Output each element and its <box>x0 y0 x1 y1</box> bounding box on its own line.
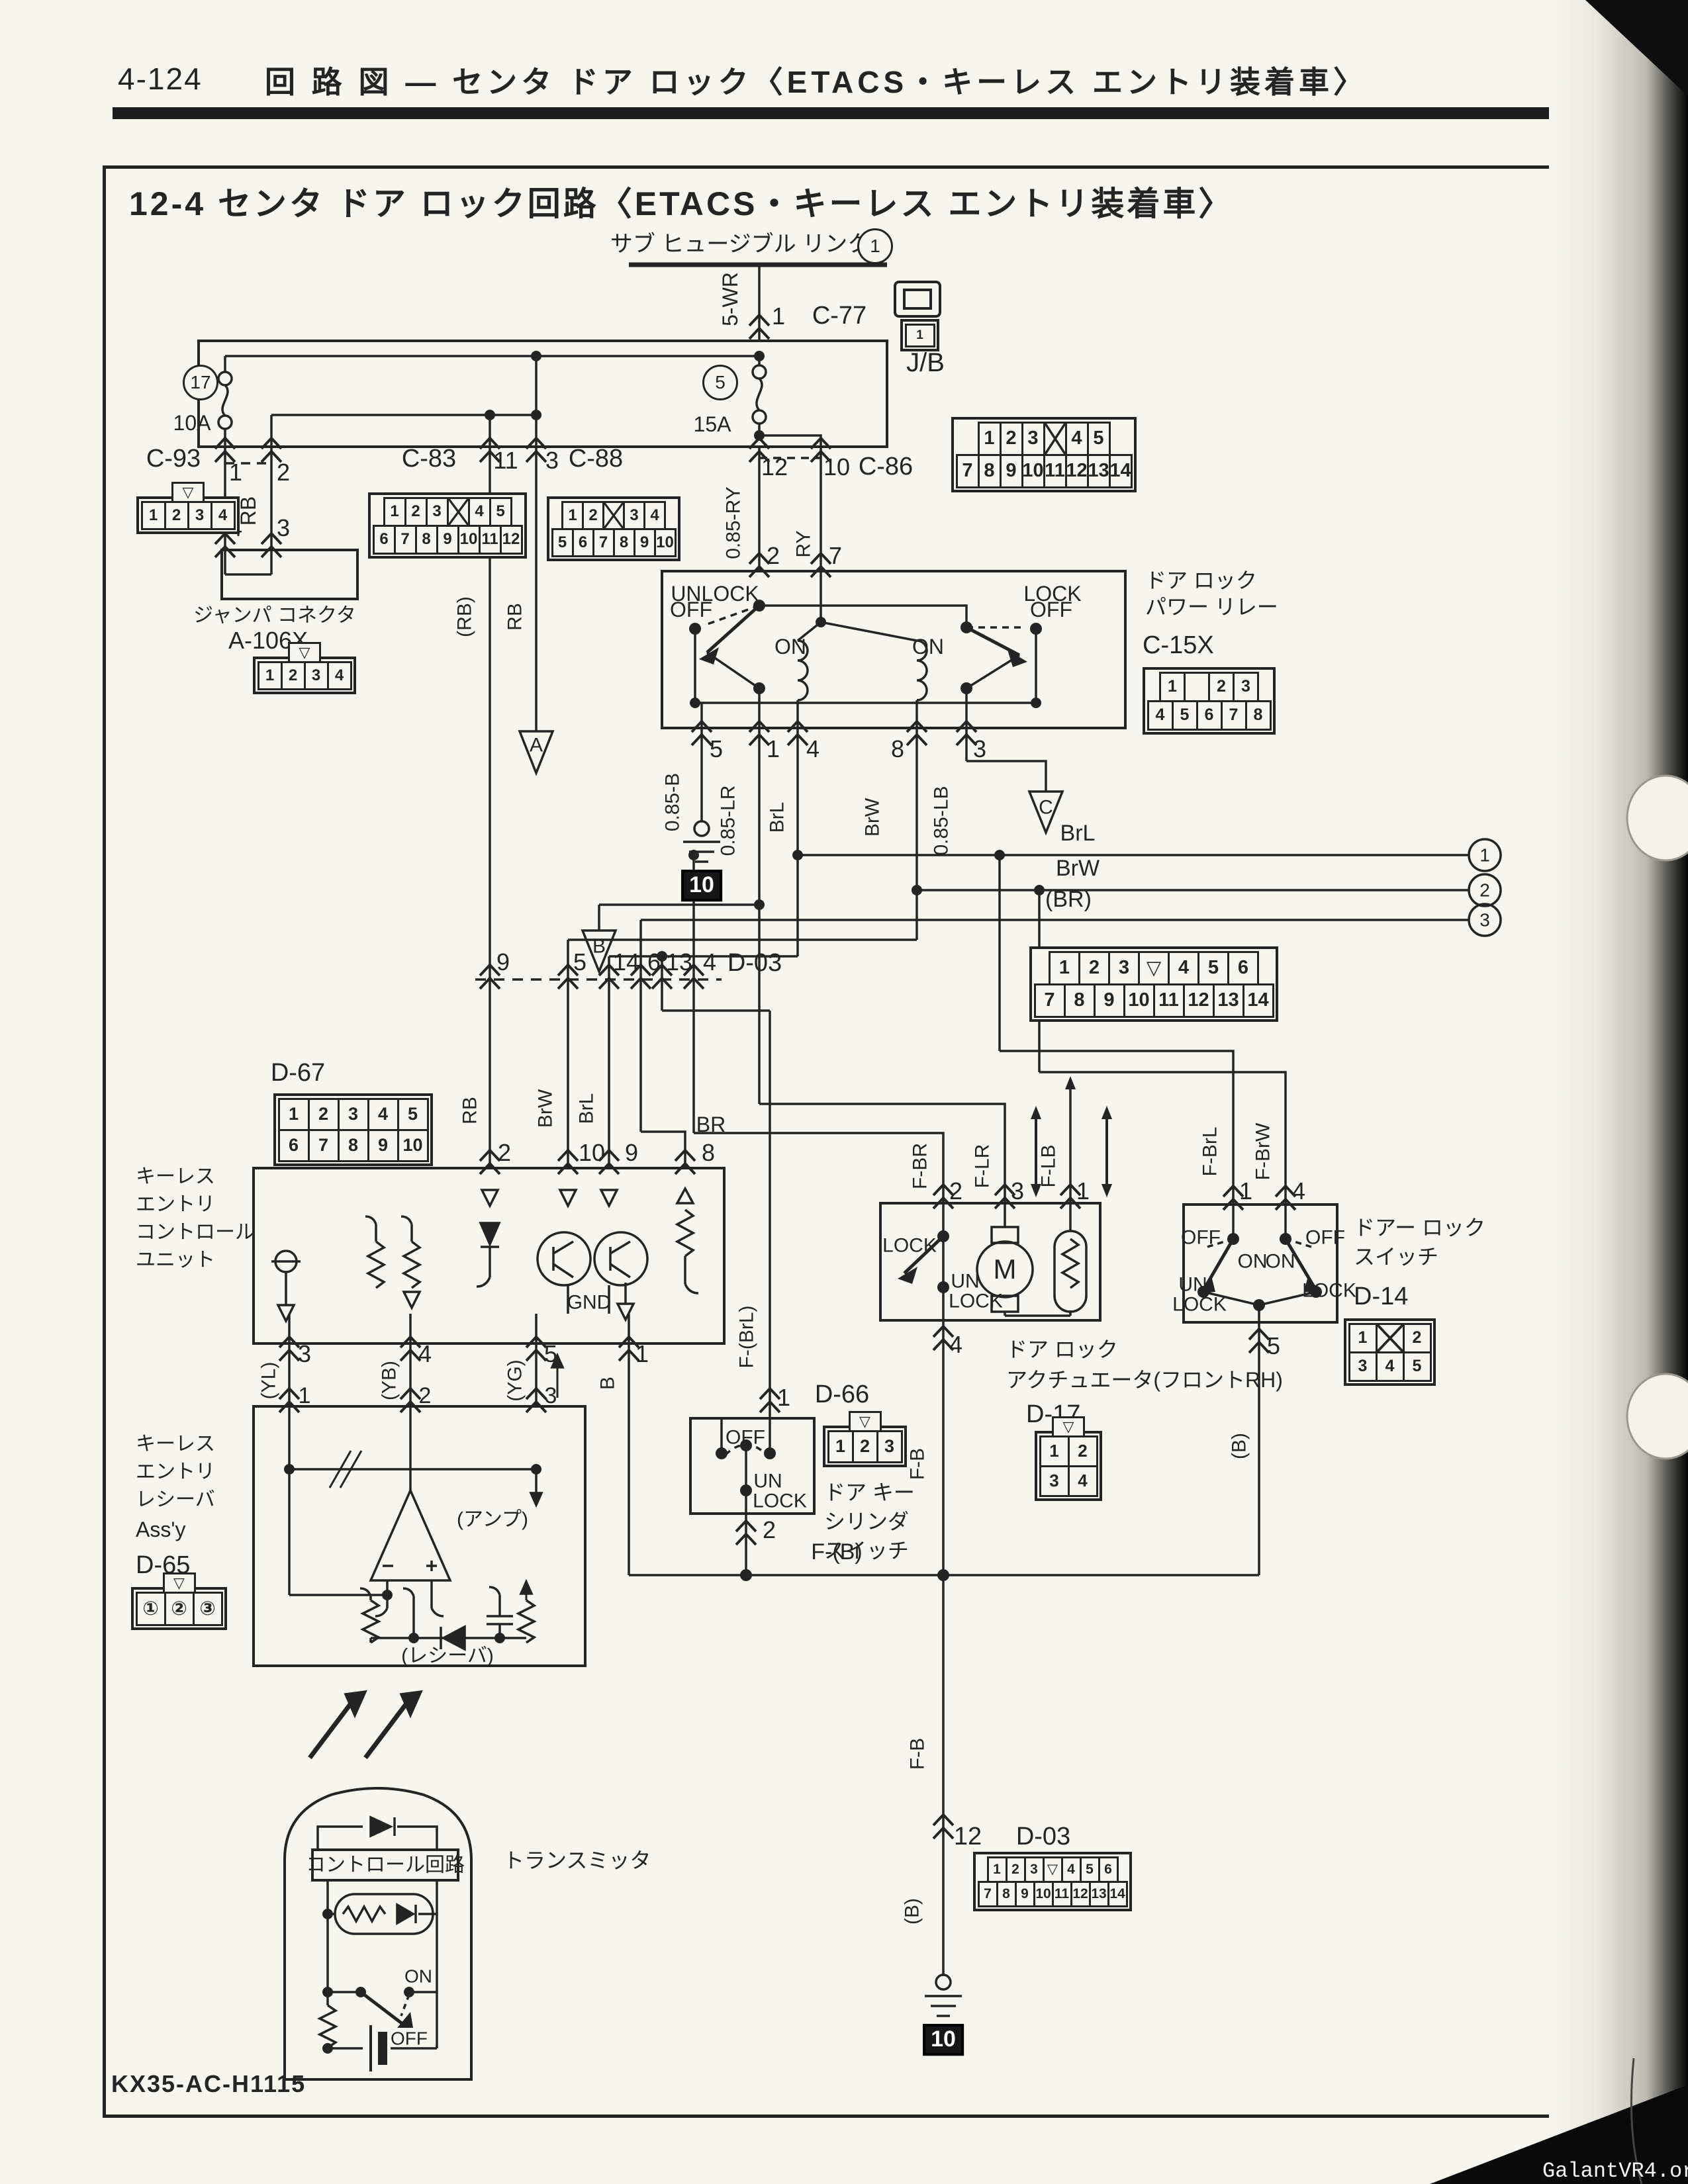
connector-pin-cell: 7 <box>394 525 417 555</box>
connector-C-88: 12345678910 <box>547 496 680 561</box>
connector-pin-cell: 3 <box>1233 672 1259 702</box>
diagram-label: B <box>597 1377 618 1390</box>
diagram-label: D-66 <box>815 1382 869 1408</box>
connector-pin-cell: 5 <box>1197 951 1229 985</box>
diagram-label: F-LB <box>1038 1144 1059 1187</box>
connector-pin-cell: 14 <box>1107 1881 1128 1907</box>
diagram-label: Ass'y <box>136 1519 185 1541</box>
connector-pin-cell: 11 <box>479 525 502 555</box>
diagram-label: 5 <box>702 365 738 400</box>
connector-pin-cell: 4 <box>1168 951 1199 985</box>
diagram-label: 1 <box>857 228 893 264</box>
diagram-label: LOCK <box>882 1235 937 1256</box>
diagram-label: ON <box>1266 1251 1295 1272</box>
connector-pin-cell <box>602 501 625 530</box>
diagram-label: (レシーバ) <box>401 1645 494 1666</box>
connector-pin-cell: 1 <box>1159 672 1186 702</box>
connector-pin-cell: 5 <box>1080 1856 1100 1883</box>
connector-pin-cell: 4 <box>643 501 666 530</box>
connector-pin-cell: 1 <box>278 1098 310 1131</box>
connector-D-17: ▽1234 <box>1035 1431 1102 1501</box>
diagram-label: パワー リレー <box>1145 596 1278 619</box>
diagram-label: 4 <box>806 737 820 762</box>
diagram-label: レシーバ <box>136 1489 215 1510</box>
diagram-label: 13 <box>666 950 692 975</box>
diagram-label: 0.85-B <box>662 773 683 831</box>
connector-pin-cell: 4 <box>1068 1465 1098 1497</box>
diagram-label: A <box>530 735 543 756</box>
diagram-label: 3 <box>1479 910 1490 929</box>
connector-pin-cell: 2 <box>281 661 306 690</box>
diagram-label: 9 <box>496 950 510 975</box>
diagram-label: サブ ヒュージブル リンク <box>610 233 870 257</box>
diagram-label: 2 <box>949 1179 962 1204</box>
connector-pin-cell: 8 <box>1245 700 1272 731</box>
connector-pin-cell: 4 <box>1061 1856 1082 1883</box>
connector-pin-cell: 10 <box>397 1129 429 1162</box>
connector-pin-cell: 1 <box>141 501 166 530</box>
connector-pin-cell: 4 <box>367 1098 399 1131</box>
diagram-label: 1 <box>229 460 242 485</box>
diagram-label: 0.85-RY <box>723 486 744 559</box>
diagram-label: F-B <box>907 1448 928 1480</box>
diagram-label: 0.85-LB <box>931 786 952 855</box>
diagram-label: D-67 <box>271 1060 325 1087</box>
diagram-label: 5 <box>573 950 586 975</box>
diagram-label: キーレス <box>136 1433 215 1455</box>
connector-pin-cell: 14 <box>1243 983 1274 1018</box>
connector-pin-cell: 5 <box>397 1098 429 1131</box>
connector-pin-cell: 2 <box>164 501 189 530</box>
diagram-label: 5 <box>1267 1334 1280 1359</box>
diagram-label: 10 <box>923 2024 964 2056</box>
diagram-label: F-BR <box>910 1143 931 1189</box>
connector-pin-cell: 12 <box>1183 983 1215 1018</box>
connector-pin-cell: 6 <box>1196 700 1223 731</box>
diagram-label: (BR) <box>1045 888 1092 912</box>
diagram-label: UN <box>753 1471 782 1492</box>
diagram-label: ON <box>912 636 944 659</box>
connector-pin-cell: 5 <box>1087 422 1111 456</box>
diagram-label: LOCK <box>1172 1294 1227 1315</box>
diagram-label: 5 <box>710 737 723 762</box>
manual-page: 4-124 回 路 図 ― センタ ドア ロック〈ETACS・キーレス エントリ… <box>0 0 1688 2184</box>
diagram-label: 1 <box>772 304 785 329</box>
connector-pin-cell: 9 <box>1094 983 1125 1018</box>
connector-C-86: 123457891011121314 <box>951 417 1137 492</box>
c77-icon <box>895 282 940 316</box>
connector-pin-cell: 4 <box>1376 1351 1405 1382</box>
diagram-label: 4 <box>1292 1179 1305 1204</box>
diagram-label: 4 <box>418 1342 432 1367</box>
connector-pin-cell: 6 <box>1098 1856 1119 1883</box>
diagram-label: (RB) <box>454 596 475 637</box>
connector-pin-cell: 1 <box>978 422 1002 456</box>
connector-pin-cell: 1 <box>827 1430 854 1463</box>
diagram-label: 3 <box>545 1385 557 1408</box>
connector-pin-cell: 3 <box>876 1430 903 1463</box>
connector-pin-cell: 8 <box>613 528 635 557</box>
diagram-label: UN <box>1178 1274 1207 1295</box>
connector-pin-cell: 4 <box>1065 422 1089 456</box>
diagram-label: 1 <box>299 1385 311 1408</box>
connector-pin-cell: 4 <box>1147 700 1174 731</box>
connector-D-03: 123▽4567891011121314 <box>1029 946 1278 1022</box>
connector-C-15X: 12345678 <box>1143 667 1276 735</box>
connector-pin-cell: 10 <box>1021 454 1045 488</box>
connector-tab: ▽ <box>849 1411 882 1432</box>
connector-pin-cell <box>1043 422 1067 456</box>
diagram-label: シリンダ <box>824 1511 909 1533</box>
diagram-label: 15A <box>694 414 731 436</box>
connector-pin-cell: 13 <box>1213 983 1244 1018</box>
diagram-label: BrL <box>1060 822 1096 846</box>
connector-pin-cell: 7 <box>956 454 980 488</box>
connector-pin-cell: 7 <box>308 1129 340 1162</box>
diagram-label: 4 <box>949 1332 962 1357</box>
diagram-label: ユニット <box>136 1250 215 1271</box>
connector-pin-cell: 12 <box>500 525 523 555</box>
diagram-label: 8 <box>702 1140 715 1165</box>
connector-pin-cell: 10 <box>1033 1881 1054 1907</box>
connector-D-03b: 123▽4567891011121314 <box>973 1852 1132 1911</box>
connector-pin-cell: 2 <box>1078 951 1110 985</box>
connector-pin-cell: 2 <box>852 1430 878 1463</box>
diagram-label: 6 <box>647 950 661 975</box>
connector-pin-cell: 3 <box>338 1098 369 1131</box>
connector-pin-cell: 5 <box>551 528 574 557</box>
connector-pin-cell: 5 <box>1403 1351 1432 1382</box>
connector-D-67: 12345678910 <box>273 1093 433 1166</box>
diagram-label: 10 <box>681 870 722 901</box>
connector-pin-cell: 5 <box>1172 700 1198 731</box>
connector-pin-cell: 10 <box>1123 983 1155 1018</box>
connector-pin-cell <box>1376 1323 1405 1353</box>
diagram-label: C-15X <box>1143 633 1214 659</box>
diagram-label: コントロール <box>136 1222 255 1243</box>
diagram-label: 1 <box>1479 845 1490 864</box>
diagram-label: LOCK <box>753 1490 807 1512</box>
connector-pin-cell: 2 <box>1000 422 1023 456</box>
connector-pin-cell: ② <box>164 1592 195 1626</box>
diagram-label: F-B <box>907 1738 928 1770</box>
connector-pin-cell: 7 <box>978 1881 998 1907</box>
diagram-label: ドア ロック <box>1145 570 1257 592</box>
connector-pin-cell: 4 <box>468 497 491 527</box>
connector-D-66: ▽123 <box>823 1426 907 1467</box>
diagram-label: F-(B) <box>811 1541 862 1565</box>
connector-pin-cell: 10 <box>457 525 481 555</box>
diagram-label: D-14 <box>1354 1284 1408 1310</box>
connector-pin-cell: 1 <box>905 324 935 347</box>
diagram-label: F-LR <box>972 1144 993 1189</box>
connector-pin-cell: 1 <box>1039 1435 1070 1467</box>
connector-pin-cell: 1 <box>258 661 283 690</box>
connector-pin-cell: 8 <box>978 454 1002 488</box>
diagram-label: OFF <box>726 1427 765 1448</box>
connector-pin-cell: 1 <box>987 1856 1008 1883</box>
diagram-label: C-88 <box>569 446 623 473</box>
connector-pin-cell: ▽ <box>1043 1856 1063 1883</box>
connector-tab: ▽ <box>171 482 205 503</box>
connector-pin-cell: 12 <box>1065 454 1089 488</box>
diagram-label: 7 <box>829 543 842 569</box>
diagram-label: UN <box>951 1271 979 1292</box>
diagram-label: (B) <box>1229 1433 1250 1459</box>
connector-tab: ▽ <box>163 1572 196 1594</box>
connector-pin-cell: 6 <box>1227 951 1259 985</box>
connector-pin-cell: 2 <box>308 1098 340 1131</box>
diagram-label: 3 <box>545 448 559 473</box>
diagram-label: 2 <box>419 1385 432 1408</box>
diagram-label: 1 <box>635 1342 649 1367</box>
diagram-label: (B) <box>902 1898 923 1925</box>
diagram-label: 0.85-LR <box>718 786 739 856</box>
diagram-label: 17 <box>183 365 218 400</box>
connector-tab: ▽ <box>288 642 321 663</box>
diagram-label: OFF <box>1181 1227 1221 1248</box>
diagram-label: 11 <box>493 448 518 473</box>
diagram-label: アクチュエータ(フロントRH) <box>1006 1369 1283 1392</box>
diagram-label: OFF <box>1030 599 1072 621</box>
diagram-label: キーレス <box>136 1166 215 1187</box>
diagram-label: 2 <box>498 1140 511 1165</box>
connector-A-106X: ▽1234 <box>253 657 356 694</box>
diagram-label: BrW <box>535 1089 556 1128</box>
connector-pin-cell: 3 <box>623 501 645 530</box>
diagram-label: 1 <box>1239 1179 1252 1204</box>
diagram-label: 10 <box>579 1140 605 1165</box>
connector-pin-cell: 9 <box>436 525 459 555</box>
connector-pin-cell: 2 <box>1403 1323 1432 1353</box>
connector-pin-cell: 3 <box>1348 1351 1378 1382</box>
connector-pin-cell: 9 <box>1015 1881 1035 1907</box>
diagram-label: RB <box>459 1097 481 1124</box>
diagram-label: BrL <box>767 802 788 833</box>
diagram-label: 2 <box>1479 880 1490 899</box>
diagram-label: 5 <box>544 1342 557 1367</box>
diagram-label: 1 <box>777 1385 790 1410</box>
connector-pin-cell: 13 <box>1087 454 1111 488</box>
connector-pin-cell: 3 <box>1021 422 1045 456</box>
connector-tab: ▽ <box>1052 1416 1085 1437</box>
diagram-label: LOCK <box>1302 1280 1356 1301</box>
diagram-label: LOCK <box>949 1291 1003 1312</box>
diagram-label: 1 <box>767 737 780 762</box>
diagram-label: BrW <box>1056 857 1100 881</box>
connector-pin-cell: 8 <box>1064 983 1096 1018</box>
connector-pin-cell: 3 <box>187 501 212 530</box>
connector-pin-cell: 6 <box>572 528 594 557</box>
diagram-label: OFF <box>1305 1227 1345 1248</box>
connector-pin-cell: 2 <box>582 501 604 530</box>
diagram-label: ドア キー <box>824 1482 915 1504</box>
connector-pin-cell: 13 <box>1089 1881 1109 1907</box>
connector-pin-cell: 1 <box>1049 951 1080 985</box>
diagram-label: C-83 <box>402 446 456 473</box>
diagram-label: ON <box>1238 1251 1268 1272</box>
diagram-label: (アンプ) <box>457 1509 528 1530</box>
diagram-label: スイッチ <box>1354 1246 1438 1269</box>
connector-pin-cell: 3 <box>1024 1856 1045 1883</box>
connector-pin-cell: 7 <box>1221 700 1247 731</box>
diagram-label: 9 <box>625 1140 638 1165</box>
connector-pin-cell: 6 <box>278 1129 310 1162</box>
diagram-label: D-03 <box>1016 1824 1070 1850</box>
connector-pin-cell: 8 <box>996 1881 1017 1907</box>
diagram-label: C-86 <box>859 454 913 480</box>
connector-pin-cell: 11 <box>1043 454 1067 488</box>
connector-pin-cell: 9 <box>367 1129 399 1162</box>
diagram-label: RY <box>793 530 814 557</box>
diagram-label: C-77 <box>812 303 867 330</box>
connector-pin-cell: 5 <box>489 497 512 527</box>
diagram-label: F-(BrL) <box>736 1306 757 1369</box>
connector-C-93: ▽1234 <box>136 496 240 534</box>
connector-pin-cell: 10 <box>654 528 677 557</box>
diagram-label: 3 <box>1011 1179 1024 1204</box>
diagram-label: 2 <box>763 1518 776 1543</box>
diagram-label: GND <box>567 1292 612 1313</box>
diagram-label: 2 <box>277 460 290 485</box>
diagram-label: OFF <box>391 2028 428 2048</box>
connector-pin-cell: 7 <box>592 528 615 557</box>
connector-pin-cell: 12 <box>1070 1881 1091 1907</box>
diagram-label: 12 <box>761 455 788 480</box>
diagram-label: RB <box>238 496 260 525</box>
diagram-label: コントロール回路 <box>306 1854 465 1876</box>
diagram-label: 10A <box>173 412 211 435</box>
diagram-label: BR <box>696 1114 726 1136</box>
connector-pin-cell: 6 <box>373 525 396 555</box>
diagram-label: 1 <box>1076 1179 1090 1204</box>
connector-pin-cell: 3 <box>426 497 449 527</box>
connector-pin-cell: 1 <box>383 497 406 527</box>
diagram-label: OFF <box>670 599 712 621</box>
connector-pin-cell: 9 <box>1000 454 1023 488</box>
diagram-label: D-03 <box>727 950 782 977</box>
diagram-label: ドアー ロック <box>1354 1217 1485 1240</box>
diagram-label: 3 <box>973 737 986 762</box>
diagram-label: ON <box>404 1966 432 1985</box>
connector-pin-cell: 1 <box>561 501 584 530</box>
connector-pin-cell: 2 <box>404 497 428 527</box>
diagram-label: 14 <box>613 950 639 975</box>
diagram-label: 5-WR <box>720 272 742 326</box>
connector-pin-cell: 8 <box>415 525 438 555</box>
diagram-label: エントリ <box>136 1461 215 1482</box>
diagram-label: 8 <box>891 737 904 762</box>
diagram-label: ON <box>774 636 806 659</box>
connector-pin-cell: 2 <box>1208 672 1235 702</box>
connector-pin-cell: 14 <box>1109 454 1133 488</box>
diagram-label: BrL <box>576 1093 597 1124</box>
connector-pin-cell: 11 <box>1153 983 1185 1018</box>
connector-pin-cell: 4 <box>211 501 236 530</box>
connector-pin-cell: 2 <box>1006 1856 1026 1883</box>
connector-D-65: ▽①②③ <box>131 1587 227 1630</box>
diagram-label: J/B <box>906 349 945 377</box>
connector-pin-cell: 1 <box>1348 1323 1378 1353</box>
connector-pin-cell: 7 <box>1034 983 1066 1018</box>
connector-pin-cell: ① <box>136 1592 166 1626</box>
connector-pin-cell: ▽ <box>1138 951 1170 985</box>
connector-pin-cell: 4 <box>327 661 352 690</box>
connector-pin-cell: 8 <box>338 1129 369 1162</box>
diagram-label: B <box>592 936 606 957</box>
diagram-label: 3 <box>298 1342 311 1367</box>
diagram-label: C-93 <box>146 446 201 473</box>
connector-pin-cell: 3 <box>304 661 329 690</box>
diagram-label: F-BrW <box>1252 1123 1274 1181</box>
connector-C-83: 123456789101112 <box>368 492 527 559</box>
connector-pin-cell: 9 <box>633 528 656 557</box>
diagram-label: 12 <box>954 1824 982 1850</box>
connector-pin-cell: 2 <box>1068 1435 1098 1467</box>
diagram-label: C <box>1039 797 1053 818</box>
connector-pin-cell: 3 <box>1108 951 1140 985</box>
diagram-label: 4 <box>703 950 716 975</box>
scan-artifacts <box>1430 0 1688 2184</box>
diagram-label: F-BrL <box>1199 1127 1221 1177</box>
diagram-label: ジャンパ コネクタ <box>193 605 356 626</box>
connector-D-14: 12345 <box>1344 1318 1436 1386</box>
connector-pin-cell: ③ <box>193 1592 223 1626</box>
diagram-label: トランスミッタ <box>503 1850 651 1872</box>
diagram-label: (YB) <box>379 1361 400 1400</box>
diagram-label: エントリ <box>136 1194 215 1215</box>
connector-pin-cell <box>1184 672 1210 702</box>
diagram-label: (YG) <box>504 1359 526 1401</box>
connector-pin-cell <box>447 497 470 527</box>
connector-pin-cell: 11 <box>1052 1881 1072 1907</box>
diagram-label: BrW <box>862 798 883 837</box>
diagram-label: 2 <box>767 543 780 569</box>
connector-pin-cell: 3 <box>1039 1465 1070 1497</box>
diagram-label: M <box>994 1255 1017 1284</box>
connector-C-77: 1 <box>900 319 939 351</box>
diagram-label: 10 <box>823 455 850 480</box>
diagram-label: ドア ロック <box>1006 1339 1118 1361</box>
diagram-label: RB <box>504 603 526 631</box>
diagram-label: 3 <box>277 516 290 541</box>
watermark: GalantVR4.org <box>1542 2159 1688 2183</box>
footer-code: KX35-AC-H1115 <box>111 2070 306 2098</box>
diagram-label: (YL) <box>258 1362 279 1400</box>
